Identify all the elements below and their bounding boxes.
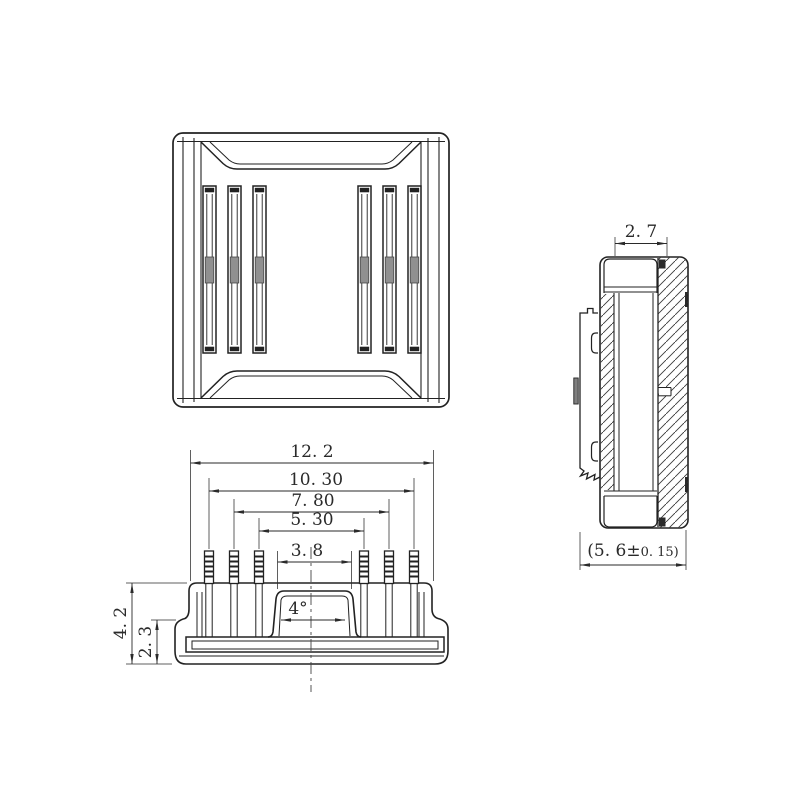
dim-overall-height-text: 4. 2 bbox=[111, 607, 131, 639]
dim-pin-span-middle-text: 7. 80 bbox=[291, 491, 334, 511]
slot-contact bbox=[205, 257, 214, 283]
slot-contact bbox=[385, 257, 394, 283]
dim-depth-main: (5. 6± bbox=[587, 541, 640, 561]
slot-contact bbox=[360, 257, 369, 283]
engineering-drawing-page: 12. 2 10. 30 7. 80 5. 30 3. 8 4° bbox=[0, 0, 800, 800]
slot-contact bbox=[410, 257, 419, 283]
slot-contact bbox=[255, 257, 264, 283]
pin bbox=[360, 551, 369, 584]
pin bbox=[230, 551, 239, 584]
dim-boss-width-text: 3. 8 bbox=[291, 541, 323, 561]
dim-pin-span-inner-text: 5. 30 bbox=[290, 510, 333, 530]
pin bbox=[410, 551, 419, 584]
dim-pin-span-outer-text: 10. 30 bbox=[289, 470, 343, 490]
engineering-drawing: 12. 2 10. 30 7. 80 5. 30 3. 8 4° bbox=[0, 0, 800, 800]
dim-overall-width-text: 12. 2 bbox=[290, 442, 333, 462]
dim-depth-tolerance: 0. 15) bbox=[641, 545, 679, 560]
slot-contact bbox=[230, 257, 239, 283]
side-view-parting-notch bbox=[658, 388, 671, 396]
pin bbox=[255, 551, 264, 584]
pin bbox=[385, 551, 394, 584]
contact-tab bbox=[574, 378, 578, 404]
pin bbox=[205, 551, 214, 584]
dim-draft-angle-text: 4° bbox=[288, 599, 307, 619]
dim-top-width-text: 2. 7 bbox=[625, 222, 657, 242]
dim-base-height-text: 2. 3 bbox=[136, 626, 156, 658]
